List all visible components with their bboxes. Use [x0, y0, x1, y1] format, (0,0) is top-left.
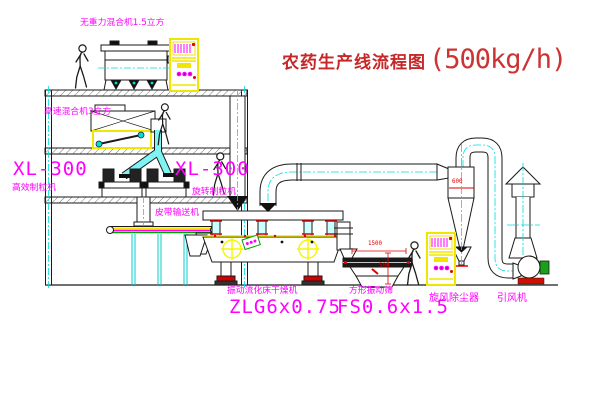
title-capacity: (500kg/h): [429, 44, 566, 75]
label-sieve-name: 方形振动筛: [349, 287, 393, 296]
cyclone-dust-collector: [448, 144, 513, 271]
vibrating-sieve: [340, 249, 411, 287]
label-granulator-left-name: 高效制粒机: [12, 184, 56, 193]
label-granulator-right-name: 旋转制粒机: [192, 188, 236, 197]
flow-diagram-canvas: 农药生产线流程图 (500kg/h) 无重力混合机1.5立方 高速混合机3立方 …: [0, 0, 600, 403]
page-title: 农药生产线流程图 (500kg/h): [282, 44, 566, 75]
label-belt-conveyor: 皮带输送机: [155, 209, 199, 218]
granulator-left: [99, 169, 145, 197]
exhaust-duct: [259, 163, 449, 212]
fluid-bed-dryer: [185, 211, 353, 285]
induced-draft-fan: [513, 256, 549, 284]
label-cyclone: 旋风除尘器: [429, 294, 479, 304]
dim-cyclone-outlet: 600: [452, 179, 462, 185]
control-cabinet-top: [170, 39, 198, 91]
control-cabinet-ground: [427, 233, 455, 285]
label-fan: 引风机: [497, 294, 527, 304]
person-top-floor: [76, 45, 89, 88]
dim-sieve-height: 500: [379, 263, 389, 269]
dim-sieve-length: 1500: [368, 241, 382, 247]
label-granulator-right-model: XL-300: [175, 160, 250, 179]
gravity-mixer: [98, 41, 177, 90]
label-gravity-mixer: 无重力混合机1.5立方: [80, 19, 164, 28]
label-dryer-name: 振动流化床干燥机: [227, 287, 297, 296]
title-text: 农药生产线流程图: [282, 48, 426, 73]
label-granulator-left-model: XL-300: [13, 160, 88, 179]
label-dryer-model: ZLG6x0.75: [229, 298, 341, 317]
label-high-speed-mixer: 高速混合机3立方: [44, 108, 111, 117]
